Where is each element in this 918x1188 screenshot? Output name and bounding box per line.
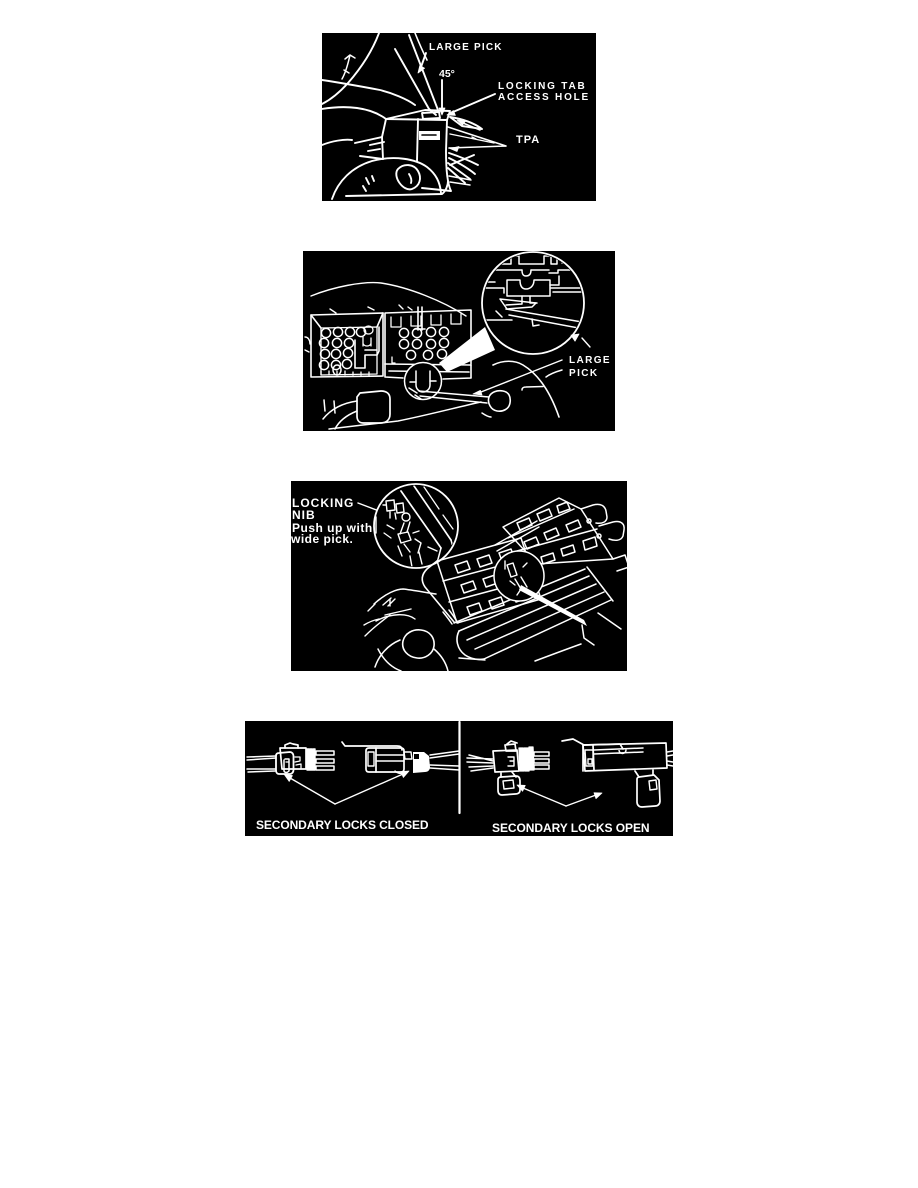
svg-text:45°: 45° — [439, 68, 455, 80]
svg-text:LOCKING TAB: LOCKING TAB — [498, 81, 587, 92]
svg-text:SECONDARY LOCKS OPEN: SECONDARY LOCKS OPEN — [492, 821, 650, 835]
svg-text:NIB: NIB — [292, 508, 316, 522]
svg-text:LARGE PICK: LARGE PICK — [429, 42, 503, 53]
svg-text:ACCESS HOLE: ACCESS HOLE — [498, 92, 590, 103]
svg-text:wide pick.: wide pick. — [291, 532, 353, 546]
svg-text:LARGE: LARGE — [569, 355, 611, 366]
svg-text:TPA: TPA — [516, 134, 540, 146]
svg-text:PICK: PICK — [569, 368, 599, 379]
svg-text:SECONDARY LOCKS CLOSED: SECONDARY LOCKS CLOSED — [256, 818, 429, 832]
